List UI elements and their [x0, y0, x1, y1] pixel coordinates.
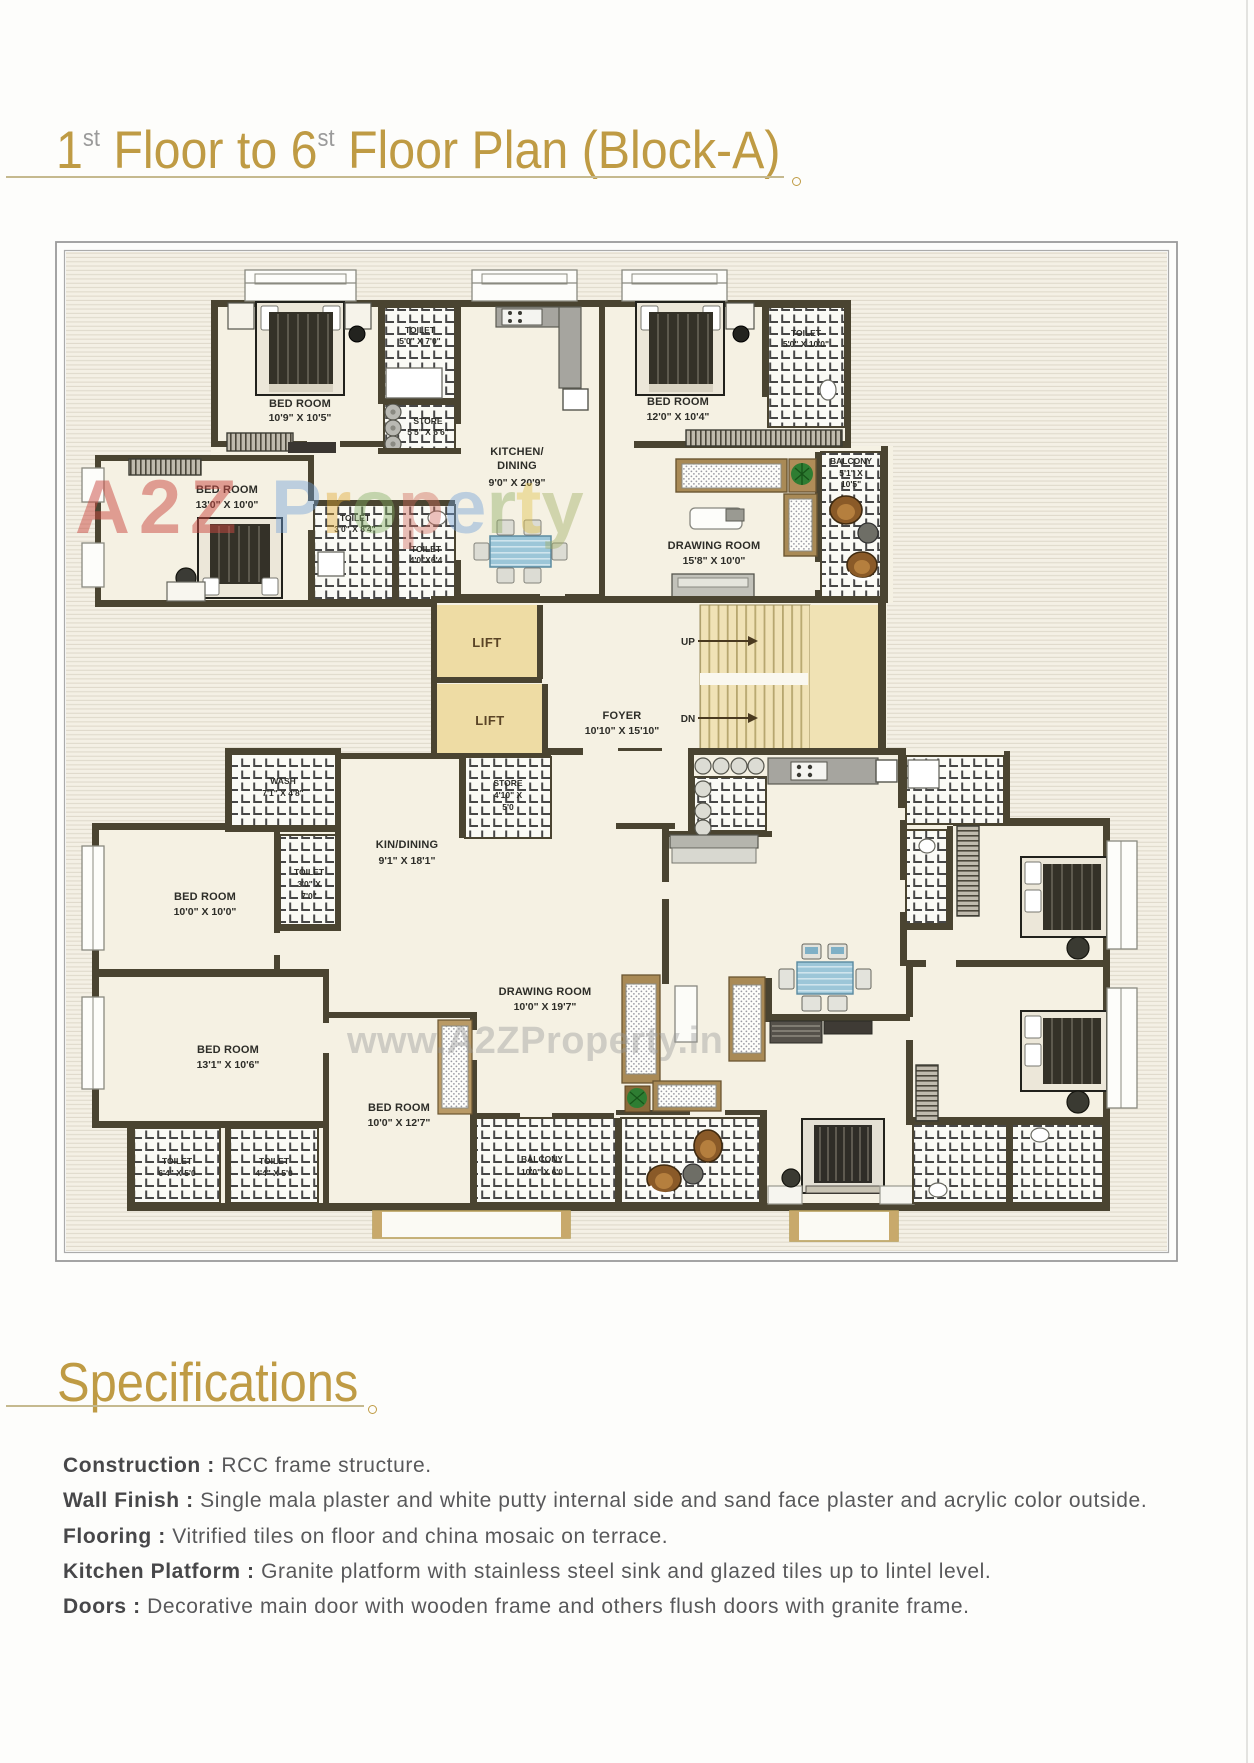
svg-text:DRAWING ROOM: DRAWING ROOM — [668, 540, 761, 552]
svg-text:BED ROOM: BED ROOM — [174, 891, 236, 903]
svg-text:BALCONY: BALCONY — [830, 456, 872, 466]
svg-text:4'10" X: 4'10" X — [494, 790, 523, 800]
svg-text:15'8" X 10'0": 15'8" X 10'0" — [683, 555, 746, 567]
svg-text:9'1" X 18'1": 9'1" X 18'1" — [379, 855, 436, 867]
svg-text:7'1" X 4'8": 7'1" X 4'8" — [262, 788, 303, 798]
svg-text:LIFT: LIFT — [472, 635, 501, 650]
svg-text:12'0" X 10'4": 12'0" X 10'4" — [647, 411, 710, 423]
svg-text:10'5": 10'5" — [841, 479, 861, 489]
svg-text:UP: UP — [681, 637, 695, 648]
svg-text:10'0" X 19'7": 10'0" X 19'7" — [514, 1001, 577, 1013]
svg-text:10'0" X 6'0: 10'0" X 6'0 — [521, 1167, 563, 1177]
svg-text:A2Z: A2Z — [75, 465, 246, 550]
svg-text:BED ROOM: BED ROOM — [197, 1044, 259, 1056]
svg-text:WASH: WASH — [270, 776, 296, 786]
svg-text:5'0: 5'0 — [502, 802, 514, 812]
svg-text:BED ROOM: BED ROOM — [647, 396, 709, 408]
svg-text:TOILET: TOILET — [162, 1156, 193, 1166]
svg-text:FOYER: FOYER — [603, 710, 642, 722]
svg-text:BED ROOM: BED ROOM — [368, 1102, 430, 1114]
svg-text:DN: DN — [681, 714, 695, 725]
svg-text:BED ROOM: BED ROOM — [269, 398, 331, 410]
svg-text:10'10" X 15'10": 10'10" X 15'10" — [585, 725, 660, 737]
svg-text:TOILET: TOILET — [294, 867, 325, 877]
svg-text:LIFT: LIFT — [475, 713, 504, 728]
svg-text:TOILET: TOILET — [259, 1156, 290, 1166]
svg-text:www.A2ZProperty.in: www.A2ZProperty.in — [346, 1020, 723, 1062]
svg-text:5'0" X 7'0": 5'0" X 7'0" — [399, 336, 440, 346]
svg-text:5'0" X 10'0": 5'0" X 10'0" — [783, 339, 829, 349]
svg-text:STORE: STORE — [493, 778, 522, 788]
svg-text:TOILET: TOILET — [791, 328, 822, 338]
svg-text:TOILET: TOILET — [405, 325, 436, 335]
svg-text:10'0" X 10'0": 10'0" X 10'0" — [174, 906, 237, 918]
svg-text:4'0"X6'4: 4'0"X6'4 — [410, 555, 443, 565]
svg-text:6'4" X 5'0: 6'4" X 5'0 — [158, 1168, 196, 1178]
svg-text:4'4" X 5'0: 4'4" X 5'0 — [255, 1168, 293, 1178]
svg-text:3'0" X: 3'0" X — [297, 879, 321, 889]
svg-text:Property: Property — [271, 465, 584, 550]
svg-text:10'0" X 12'7": 10'0" X 12'7" — [368, 1117, 431, 1129]
svg-text:KITCHEN/: KITCHEN/ — [490, 446, 544, 458]
svg-text:5'1" X: 5'1" X — [839, 468, 863, 478]
svg-text:5'5" X 6'6": 5'5" X 6'6" — [407, 427, 448, 437]
svg-text:13'1" X 10'6": 13'1" X 10'6" — [197, 1059, 260, 1071]
svg-text:STORE: STORE — [413, 416, 442, 426]
svg-text:DRAWING ROOM: DRAWING ROOM — [499, 986, 592, 998]
svg-text:BALCONY: BALCONY — [521, 1154, 563, 1164]
svg-text:10'9" X 10'5": 10'9" X 10'5" — [269, 412, 332, 424]
svg-text:7'0": 7'0" — [301, 891, 317, 901]
svg-text:KIN/DINING: KIN/DINING — [376, 839, 439, 851]
